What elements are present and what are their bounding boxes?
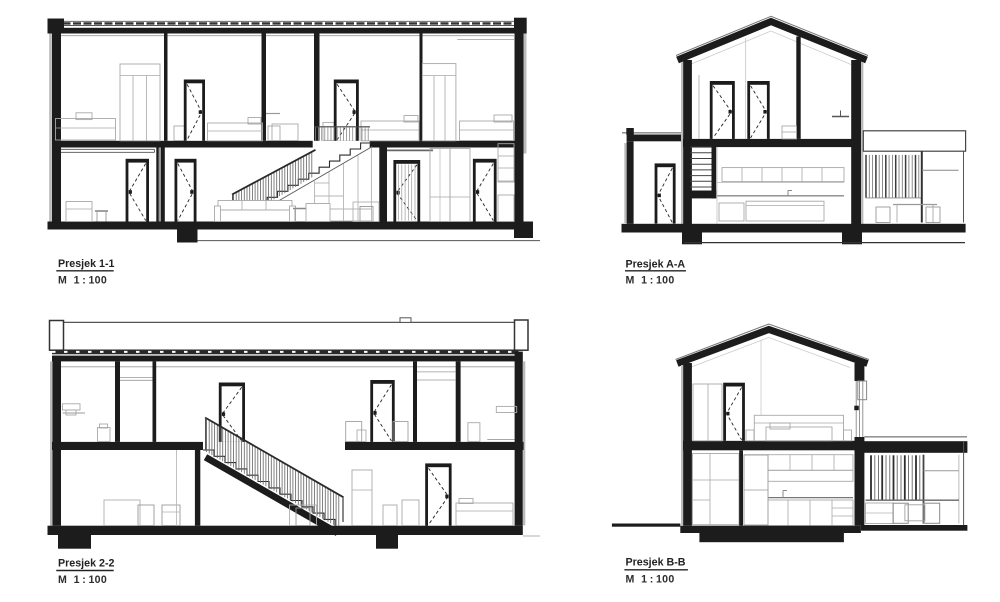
svg-text:Presjek 1-1: Presjek 1-1 [58,258,115,270]
svg-text:Presjek B-B: Presjek B-B [626,557,686,569]
svg-text:M 1 : 100: M 1 : 100 [58,274,107,286]
svg-text:M 1 : 100: M 1 : 100 [58,574,107,586]
svg-text:M 1 : 100: M 1 : 100 [626,573,675,585]
svg-text:Presjek 2-2: Presjek 2-2 [58,558,115,570]
svg-text:Presjek A-A: Presjek A-A [626,259,686,271]
svg-text:M 1 : 100: M 1 : 100 [626,274,675,286]
